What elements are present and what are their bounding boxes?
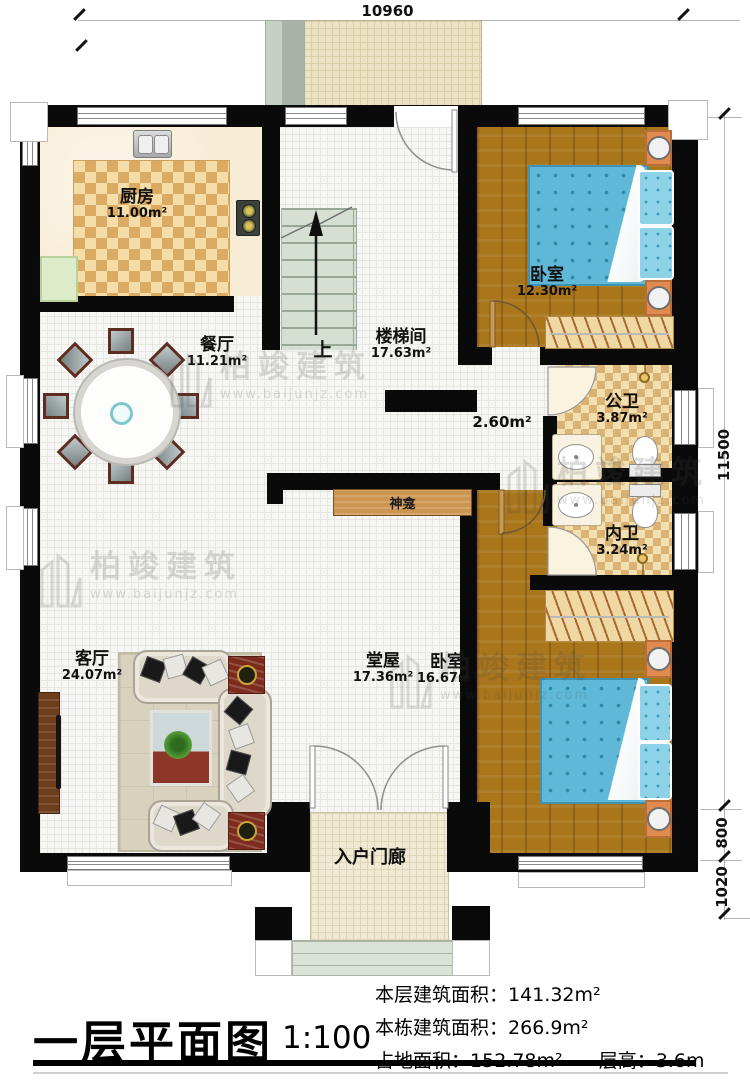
watermark-logo-icon (503, 458, 549, 516)
watermark-logo-icon (36, 552, 82, 610)
window-marker (698, 511, 714, 573)
dining-chair (108, 328, 134, 354)
stat-height-value: 3.6m (656, 1050, 705, 1072)
rear-terrace-steps (265, 20, 305, 108)
window-bedroom-bottom (518, 856, 643, 870)
window-marker (668, 100, 708, 140)
wardrobe-top (545, 316, 674, 349)
coffee-table-plant (164, 731, 192, 759)
bed-top-pillow (638, 170, 674, 226)
window-marker (6, 506, 24, 570)
entry-steps (292, 940, 454, 976)
kitchen-sink (133, 130, 172, 158)
kitchen-appliance (40, 256, 78, 302)
wall-bath-south (530, 575, 698, 590)
watermark: 柏竣建筑 www.baijunjz.com (386, 653, 592, 711)
dimension-top-label: 10960 (345, 2, 430, 20)
window-marker (698, 388, 714, 448)
stat-height-label: 层高： (599, 1050, 656, 1072)
dimension-right-total: 11500 (715, 423, 733, 487)
window-marker (67, 870, 232, 886)
kitchen-rug (73, 160, 230, 298)
wall-shrine (267, 473, 500, 490)
side-table-bottom (228, 812, 265, 850)
public-bath-lamp (639, 372, 650, 383)
rear-terrace-deck (303, 20, 482, 108)
window-living-south (67, 856, 230, 870)
stat-floor-area-value: 141.32m² (508, 984, 601, 1006)
label-living: 客厅 24.07m² (52, 650, 132, 683)
bed-bottom-pillow (638, 684, 672, 742)
label-corridor: 2.60m² (470, 414, 534, 431)
label-public-bath: 公卫 3.87m² (588, 393, 656, 426)
shrine-label: 神龛 (389, 493, 415, 512)
side-table-top (228, 656, 265, 694)
watermark: 柏竣建筑 www.baijunjz.com (166, 352, 372, 410)
wall-stairhall-nook (385, 390, 477, 412)
bed-top-pillow (638, 226, 674, 280)
wardrobe-bottom (545, 590, 674, 642)
watermark: 柏竣建筑 www.baijunjz.com (503, 458, 709, 516)
nightstand (645, 800, 672, 838)
dining-chair (43, 393, 69, 419)
wall-stair-east (458, 105, 477, 363)
window-kitchen (77, 107, 227, 125)
wall-shrine-stub (267, 473, 283, 504)
wall-kitchen-stair (262, 105, 280, 350)
window-left-dining-1 (22, 378, 38, 444)
bed-bottom-pillow (638, 742, 672, 800)
dimension-line-right (724, 115, 725, 920)
stat-building-area-label: 本栋建筑面积： (375, 1017, 508, 1039)
stat-floor-area-label: 本层建筑面积： (375, 984, 508, 1006)
label-porch: 入户门廊 (306, 848, 434, 868)
porch-pillar-left (255, 907, 292, 940)
nightstand (645, 280, 672, 316)
window-marker (6, 375, 24, 448)
dining-table-cup (110, 402, 133, 425)
dimension-tick (677, 8, 690, 21)
label-private-bath: 内卫 3.24m² (588, 525, 656, 558)
plan-scale: 1:100 (282, 1020, 371, 1056)
window-stairwell (285, 107, 347, 125)
watermark-logo-icon (166, 352, 212, 410)
tv-screen (56, 715, 61, 789)
window-bedroom-top (518, 107, 645, 125)
stat-land-area-value: 152.78m² (470, 1050, 563, 1072)
stat-land-area-height: 占地面积：152.78m² 层高：3.6m (375, 1046, 704, 1073)
dimension-ext-line (724, 918, 750, 919)
floor-plan-canvas: 10960 11500 800 1020 (0, 0, 750, 1081)
wall-left (20, 105, 40, 872)
stat-floor-area: 本层建筑面积：141.32m² (375, 980, 601, 1007)
window-public-bath (674, 390, 696, 445)
porch-pillar-base-left (255, 940, 292, 976)
nightstand (645, 130, 672, 166)
label-bedroom-top: 卧室 12.30m² (492, 266, 602, 299)
wall-entry-stub-left (267, 802, 310, 872)
wall-entry-stub-right (447, 802, 490, 872)
watermark-logo-icon (386, 653, 432, 711)
window-private-bath (674, 513, 696, 570)
kitchen-stove (236, 200, 260, 236)
wall-bedroom-top-south-b (540, 347, 698, 365)
dimension-tick (75, 39, 88, 52)
stat-land-area-label: 占地面积： (375, 1050, 470, 1072)
dimension-right-steps: 1020 (713, 863, 731, 911)
wall-bedroom-top-south-a (458, 347, 492, 365)
window-marker (518, 872, 645, 888)
stat-building-area: 本栋建筑面积：266.9m² (375, 1013, 589, 1040)
nightstand (645, 640, 672, 678)
label-kitchen: 厨房 11.00m² (77, 188, 197, 221)
dimension-tick (73, 8, 86, 21)
stat-building-area-value: 266.9m² (508, 1017, 589, 1039)
porch-pillar-right (452, 906, 490, 940)
door-opening-stairwell (394, 106, 458, 127)
shrine-cabinet: 神龛 (333, 489, 472, 516)
floor-porch (310, 812, 449, 942)
window-marker (10, 102, 48, 142)
dimension-right-porch: 800 (713, 809, 731, 857)
porch-pillar-base-right (452, 940, 490, 976)
watermark: 柏竣建筑 www.baijunjz.com (36, 552, 242, 610)
